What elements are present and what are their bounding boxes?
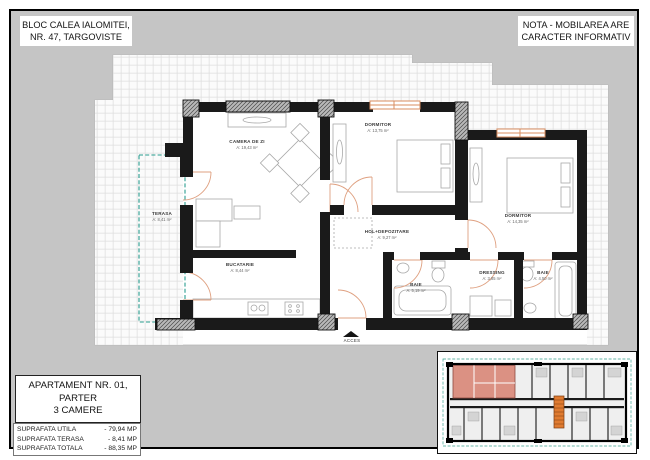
floor-plan-sheet: CAMERA DE ZI A: 19,43 m² DORMITOR A: 13,… [0, 0, 650, 460]
area-value: - 88,35 MP [104, 444, 137, 454]
entrance-label: ACCES [339, 338, 365, 343]
surface-areas-table: SUPRAFATA UTILA - 79,94 MP SUPRAFATA TER… [13, 423, 141, 456]
area-value: - 79,94 MP [104, 425, 137, 435]
address-line-1: BLOC CALEA IALOMITEI, [22, 19, 130, 31]
address-line-2: NR. 47, TARGOVISTE [22, 31, 130, 43]
key-plan-box [437, 351, 637, 454]
disclaimer-line-2: CARACTER INFORMATIV [520, 31, 632, 43]
furnishing-disclaimer-note: NOTA - MOBILAREA ARE CARACTER INFORMATIV [518, 16, 634, 46]
apartment-number: APARTAMENT NR. 01, [16, 380, 140, 393]
table-row: SUPRAFATA TERASA - 8,41 MP [14, 435, 140, 445]
key-plan-drawing [438, 352, 636, 453]
apartment-title-block: APARTAMENT NR. 01, PARTER 3 CAMERE [15, 375, 141, 423]
area-label: SUPRAFATA TOTALA [17, 444, 83, 454]
area-label: SUPRAFATA TERASA [17, 435, 84, 445]
table-row: SUPRAFATA TOTALA - 88,35 MP [14, 444, 140, 454]
apartment-rooms-count: 3 CAMERE [16, 405, 140, 418]
table-row: SUPRAFATA UTILA - 79,94 MP [14, 425, 140, 435]
area-value: - 8,41 MP [108, 435, 137, 445]
area-label: SUPRAFATA UTILA [17, 425, 76, 435]
entrance-arrow-icon [343, 331, 359, 337]
disclaimer-line-1: NOTA - MOBILAREA ARE [520, 19, 632, 31]
building-address-note: BLOC CALEA IALOMITEI, NR. 47, TARGOVISTE [20, 16, 132, 46]
apartment-floor: PARTER [16, 393, 140, 406]
